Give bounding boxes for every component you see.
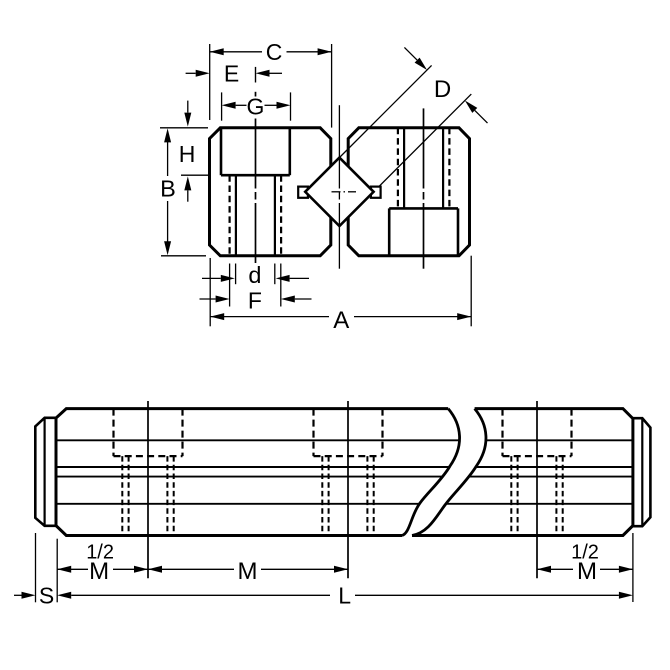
svg-text:B: B xyxy=(160,175,176,201)
svg-text:M: M xyxy=(238,558,258,585)
svg-text:M: M xyxy=(89,558,109,585)
svg-text:G: G xyxy=(247,94,265,120)
svg-text:E: E xyxy=(224,61,239,87)
svg-text:F: F xyxy=(248,288,262,314)
svg-text:D: D xyxy=(434,76,451,103)
svg-text:H: H xyxy=(179,141,196,167)
svg-text:L: L xyxy=(338,583,351,609)
svg-text:M: M xyxy=(577,558,597,585)
svg-text:A: A xyxy=(333,307,349,334)
svg-text:C: C xyxy=(266,39,283,65)
svg-text:d: d xyxy=(248,262,261,288)
svg-text:S: S xyxy=(39,583,54,609)
